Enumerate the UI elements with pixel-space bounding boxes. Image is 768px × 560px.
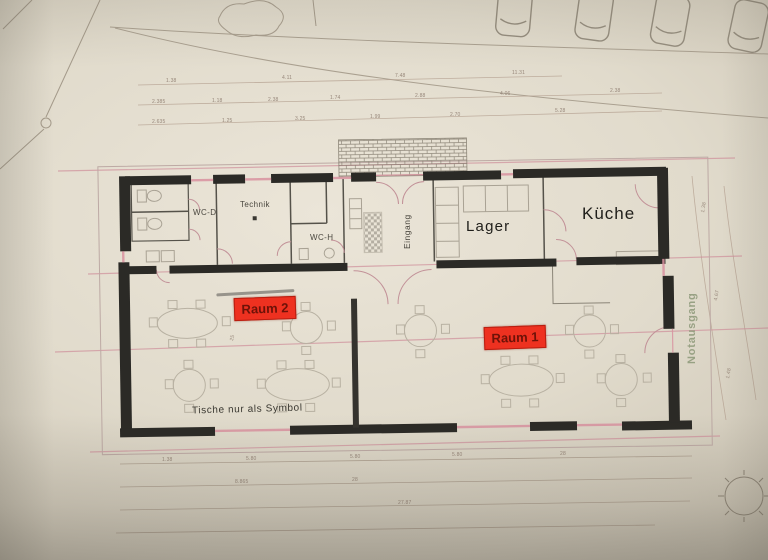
dimension-label: 2.635 [152,119,166,125]
dimension-label: 5.28 [555,108,566,114]
dimension-label: 1.99 [370,114,381,120]
building-plan [98,134,713,455]
dimension-label: 28 [560,451,566,457]
parked-cars [495,0,768,54]
room-label-technik: Technik [240,200,270,209]
dimension-label: 5.80 [350,454,361,460]
dimension-label: 2.70 [450,112,461,118]
dimension-label: 5.80 [246,456,257,462]
room-label-kueche: Küche [582,204,635,224]
dimension-label: 4.11 [282,75,292,81]
dimension-label: 2.88 [415,93,426,99]
dimension-label: 1.38 [166,78,177,84]
dimension-label: 2.38 [268,97,279,103]
dimension-label: 1.74 [330,95,341,101]
dimension-label: 3.25 [295,116,306,122]
dimension-label: 8.865 [235,479,249,485]
highlight-raum-1: Raum 1 [484,325,547,350]
dimension-label: 1.25 [222,118,233,124]
building-outer-outline [98,157,712,455]
dimension-lines-bottom [116,456,692,533]
dimension-label: 4.06 [500,91,511,97]
dimension-lines-right [692,176,756,420]
tree-icon [218,1,283,37]
dimension-label: 28 [352,477,358,483]
hall-divider-wall [351,299,359,428]
entrance-paving [338,138,467,177]
tables-and-chairs [149,293,652,414]
dimension-label: 7.48 [395,73,406,79]
dimension-label: 2.385 [152,99,166,105]
dimension-label: 2.38 [610,88,621,94]
dimension-label: 1.38 [162,457,173,463]
emergency-exit-label: Notausgang [686,292,698,364]
tree-bottom-right-icon [718,470,768,522]
site-plan-drawing [0,0,768,560]
pen-mark [218,291,293,295]
dimension-label: 27.87 [398,500,412,506]
floor-plan-photo: WC-D Technik WC-H Eingang Lager Küche Ra… [0,0,768,560]
room-label-lager: Lager [466,218,510,235]
room-label-wc-h: WC-H [310,233,333,242]
room-label-eingang: Eingang [402,214,412,249]
highlight-raum-2: Raum 2 [234,296,297,321]
dimension-label: 5.80 [452,452,463,458]
room-label-wc-d: WC-D [193,208,216,217]
dimension-label: 1.18 [212,98,223,104]
dimension-label: 11.31 [512,70,525,76]
